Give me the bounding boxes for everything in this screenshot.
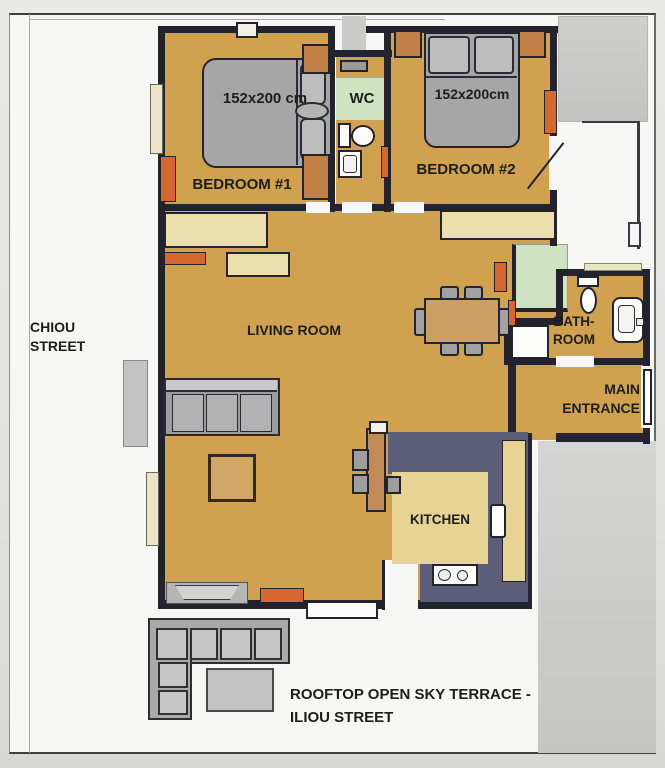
bedroom1-door-opening xyxy=(306,202,330,213)
living-bottom-window xyxy=(306,601,378,619)
wall-hall-right xyxy=(508,363,516,440)
bar-stool-icon xyxy=(386,476,401,494)
bedroom2-closet xyxy=(518,30,546,58)
bedroom1-bed-size: 152x200 cm xyxy=(210,89,320,109)
tv-unit-icon xyxy=(166,582,248,604)
terrace-cushion xyxy=(190,628,218,660)
street-label-line1: CHIOU xyxy=(30,318,85,337)
margin-line-left xyxy=(29,14,30,753)
sofa-back xyxy=(166,380,277,392)
wc-radiator xyxy=(381,146,389,178)
living-room-label: LIVING ROOM xyxy=(238,321,350,340)
bedroom2-bed-size: 152x200cm xyxy=(424,85,520,104)
terrace-cushion xyxy=(158,662,188,688)
entrance-label-line2: ENTRANCE xyxy=(552,399,640,418)
neighbor-block-bottom-right xyxy=(538,441,656,753)
terrace-cushion xyxy=(254,628,282,660)
main-entrance-label: MAIN ENTRANCE xyxy=(552,380,640,418)
bedroom2-closet xyxy=(394,30,422,58)
hall-radiator xyxy=(494,262,507,292)
bathroom-window xyxy=(584,263,642,271)
coffee-table-icon xyxy=(208,454,256,502)
wc-sink-icon xyxy=(338,150,362,178)
terrace-label: ROOFTOP OPEN SKY TERRACE - ILIOU STREET xyxy=(290,684,531,729)
bedroom2-label: BEDROOM #2 xyxy=(398,160,534,180)
tv-screen xyxy=(175,585,239,600)
pillow-icon xyxy=(474,36,514,74)
light-shaft-above-wc xyxy=(342,16,366,54)
chair-icon xyxy=(464,342,483,356)
kitchen-label: KITCHEN xyxy=(390,511,490,529)
bathroom-label: BATH- ROOM xyxy=(545,313,603,349)
sink-inner xyxy=(343,155,357,173)
bedroom1-closet xyxy=(302,44,330,74)
bar-shelf xyxy=(369,421,388,434)
sink-inner xyxy=(618,305,635,333)
terrace-cushion xyxy=(220,628,252,660)
bedroom2-right-door-opening xyxy=(549,136,558,190)
margin-line-top xyxy=(29,19,445,20)
bedroom2-radiator xyxy=(544,90,557,134)
sofa-cushion xyxy=(172,394,204,432)
bedroom2-door-opening xyxy=(394,202,424,213)
chair-icon xyxy=(440,342,459,356)
terrace-cushion xyxy=(156,628,188,660)
bedroom2-wardrobe xyxy=(440,210,556,240)
wc-toilet-tank xyxy=(338,123,351,148)
pillow-icon xyxy=(428,36,470,74)
terrace-cushion xyxy=(158,690,188,715)
entrance-door xyxy=(643,369,652,425)
terrace-table-icon xyxy=(206,668,274,712)
exterior-unit-left xyxy=(123,360,148,447)
bedroom1-top-window xyxy=(236,22,258,38)
bathroom-label-line2: ROOM xyxy=(545,331,603,349)
street-label-line2: STREET xyxy=(30,337,85,356)
sink-tap xyxy=(636,318,644,326)
breakfast-bar-icon xyxy=(366,428,386,512)
neighbor-block-top-right xyxy=(558,16,648,122)
sofa-icon xyxy=(164,378,280,436)
wc-label: WC xyxy=(336,89,388,109)
wc-toilet-icon xyxy=(351,125,375,147)
wall-entrance-bottom xyxy=(556,433,650,442)
wc-door-opening xyxy=(342,202,372,213)
bedroom1-left-window xyxy=(150,84,163,154)
bathext-radiator xyxy=(508,300,516,326)
terrace-door-opening xyxy=(382,560,418,610)
living-radiator-top xyxy=(164,252,206,265)
bathroom-sink-icon xyxy=(612,297,644,343)
floorplan-canvas: CHIOU STREET 152x200 cm BEDROOM #1 WC 15… xyxy=(0,0,665,768)
kitchen-sink-icon xyxy=(432,564,478,586)
shower-icon xyxy=(511,325,549,359)
bathroom-label-line1: BATH- xyxy=(545,313,603,331)
sofa-cushion xyxy=(240,394,272,432)
bathroom-toilet-icon xyxy=(580,287,597,314)
bedroom1-bed-icon xyxy=(202,58,332,168)
wall-wc-right xyxy=(384,26,391,212)
sofa-cushion xyxy=(206,394,238,432)
cabinet xyxy=(226,252,290,277)
terrace-label-line1: ROOFTOP OPEN SKY TERRACE - xyxy=(290,684,531,707)
bathroom-toilet-tank xyxy=(577,276,599,287)
bed-divider xyxy=(426,76,517,78)
dining-table-icon xyxy=(424,298,500,344)
bar-stool-icon xyxy=(352,449,369,471)
wall-bathroom-right xyxy=(643,269,650,368)
wc-window xyxy=(340,60,368,72)
sink-basin-left xyxy=(438,569,451,581)
bathroom-door-opening xyxy=(556,356,594,367)
bedroom1-label: BEDROOM #1 xyxy=(172,175,312,195)
sink-basin-right xyxy=(457,570,468,581)
terrace-label-line2: ILIOU STREET xyxy=(290,707,531,730)
living-left-window xyxy=(146,472,159,546)
bar-stool-icon xyxy=(352,474,369,494)
terrace-sofa-icon xyxy=(148,660,192,720)
fridge-icon xyxy=(490,504,506,538)
terrace-sofa-icon xyxy=(148,618,290,664)
wall-wc-top xyxy=(330,50,392,57)
living-radiator-bottom xyxy=(260,588,304,603)
entrance-label-line1: MAIN xyxy=(552,380,640,399)
wardrobe xyxy=(164,212,268,248)
street-label-left: CHIOU STREET xyxy=(30,318,85,356)
railing-post xyxy=(628,222,641,247)
